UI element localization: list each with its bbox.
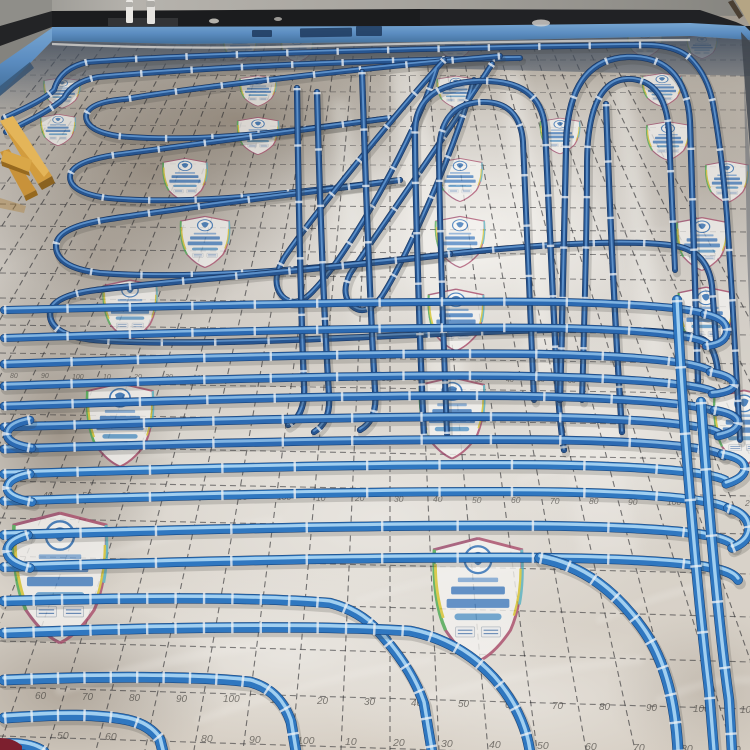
svg-text:100: 100 [223, 694, 240, 705]
svg-text:70: 70 [82, 692, 94, 703]
svg-text:80: 80 [10, 373, 18, 380]
svg-text:20: 20 [392, 737, 405, 749]
svg-text:10: 10 [740, 705, 750, 716]
svg-text:30: 30 [364, 697, 376, 708]
svg-text:50: 50 [57, 730, 69, 742]
svg-text:50: 50 [537, 740, 549, 750]
svg-text:80: 80 [599, 702, 611, 713]
svg-text:90: 90 [646, 703, 658, 714]
svg-text:90: 90 [249, 734, 261, 746]
svg-text:70: 70 [633, 742, 645, 750]
svg-text:70: 70 [552, 701, 564, 712]
svg-text:90: 90 [41, 373, 49, 380]
svg-text:80: 80 [129, 693, 141, 704]
svg-text:60: 60 [35, 691, 47, 702]
svg-text:80: 80 [201, 733, 213, 745]
svg-text:60: 60 [585, 741, 597, 750]
svg-text:30: 30 [441, 738, 453, 750]
svg-text:20: 20 [744, 498, 750, 508]
svg-text:10: 10 [345, 736, 357, 748]
svg-text:90: 90 [176, 694, 188, 705]
svg-text:20: 20 [316, 696, 329, 707]
svg-text:50: 50 [458, 699, 470, 710]
svg-text:40: 40 [489, 739, 501, 750]
svg-text:60: 60 [105, 731, 117, 743]
